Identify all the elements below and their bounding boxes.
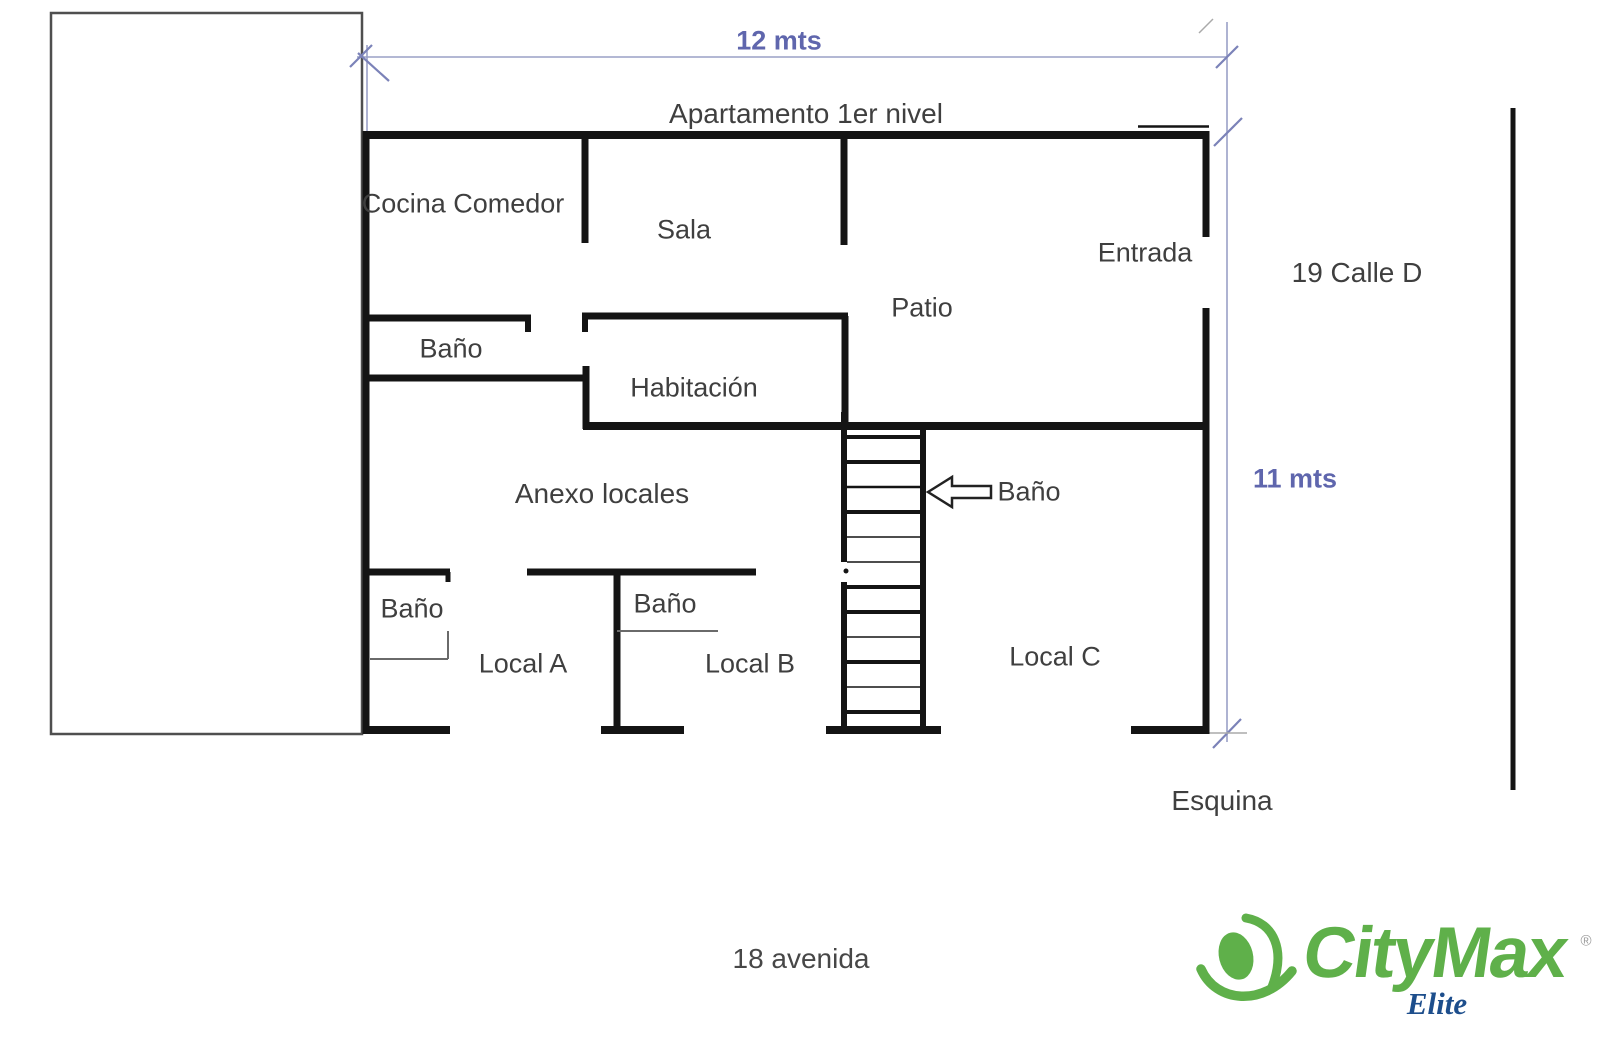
citymax-logo-icon [1201,918,1292,996]
dimension-height-label: 11 mts [1253,464,1337,495]
room-label-habitacion: Habitación [630,373,758,404]
dimension-lines [357,22,1227,742]
floor-plan-drawing [0,0,1600,1042]
street-label-calle: 19 Calle D [1292,257,1423,289]
dimension-ticks [350,45,1242,748]
bath-direction-arrow [928,477,991,507]
room-label-patio: Patio [891,293,953,324]
plan-title: Apartamento 1er nivel [669,98,943,130]
room-label-local-a: Local A [479,649,568,680]
floor-plan-page: 12 mts 11 mts Apartamento 1er nivel Coci… [0,0,1600,1042]
room-label-local-c: Local C [1009,642,1101,673]
dimension-width-label: 12 mts [736,26,822,57]
room-label-local-b: Local B [705,649,795,680]
room-label-bano-local-a: Baño [380,594,443,625]
room-label-cocina-comedor: Cocina Comedor [362,189,565,220]
registered-mark: ® [1580,933,1591,950]
room-label-bano-local-b: Baño [633,589,696,620]
street-label-esquina: Esquina [1171,785,1272,817]
citymax-elite-tagline: Elite [1407,986,1467,1022]
room-label-bano-escaleras: Baño [997,477,1060,508]
room-label-entrada: Entrada [1098,238,1193,269]
citymax-logo-text: CityMax [1298,912,1572,994]
room-label-bano-apartamento: Baño [419,334,482,365]
room-label-anexo-locales: Anexo locales [515,478,689,510]
staircase [844,412,924,733]
room-label-sala: Sala [657,215,711,246]
neighbor-building-outline [51,13,362,734]
street-label-avenida: 18 avenida [732,943,869,975]
